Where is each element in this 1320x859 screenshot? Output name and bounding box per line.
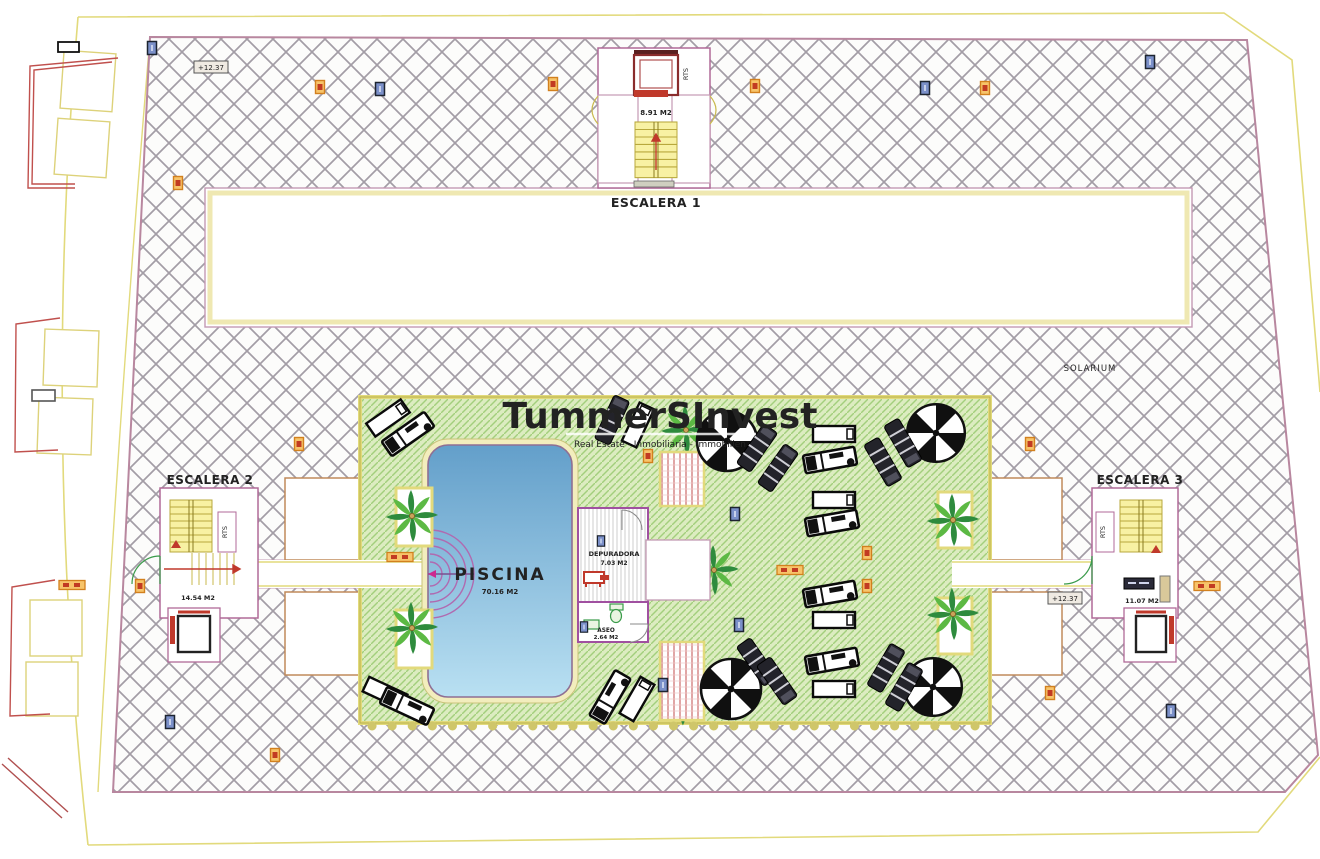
- stair-flight: [1120, 500, 1162, 552]
- elevation-value: +12.37: [1052, 595, 1078, 603]
- wall-segment: [1160, 576, 1170, 602]
- escalera2-label: ESCALERA 2: [167, 473, 254, 487]
- facade-vent-top: [58, 42, 79, 52]
- elevation-badge-top: +12.37: [194, 61, 228, 73]
- solarium-label: SOLARIUM: [1064, 364, 1117, 374]
- escalera1-rts-label: RTS: [682, 68, 690, 80]
- elevator-shaft: [1136, 616, 1166, 652]
- aseo-area: 2.64 M2: [594, 635, 619, 641]
- elevator-sill: [634, 90, 668, 97]
- elevation-badge-east: +12.37: [1048, 592, 1082, 604]
- escalera1-area: 8.91 M2: [640, 109, 672, 117]
- escalera1-core: 8.91 M2 RTS: [592, 48, 716, 188]
- pool-label: PISCINA: [454, 565, 545, 585]
- floor-plan-drawing: ESCALERA 1 8.91 M2 RTS: [0, 0, 1320, 859]
- escalera2-area: 14.54 M2: [181, 594, 215, 602]
- escalera1-label: ESCALERA 1: [611, 195, 701, 210]
- escalera2-rts-label: RTS: [221, 526, 229, 538]
- elevator-shaft: [178, 616, 210, 652]
- escalera3-label: ESCALERA 3: [1097, 473, 1184, 487]
- roof-void-band: ESCALERA 1: [205, 188, 1192, 327]
- toilet-icon: [611, 610, 622, 623]
- watermark-tagline: Real Estate - Inmobiliaria - Immobilien: [574, 440, 746, 450]
- pool-area: 70.16 M2: [482, 588, 519, 596]
- aseo-room: ASEO 2.64 M2: [578, 602, 648, 642]
- watermark-brand: TummerSInvest: [503, 396, 818, 437]
- elevation-value: +12.37: [198, 64, 224, 72]
- depuradora-label: DEPURADORA: [589, 550, 640, 558]
- depuradora-area: 7.03 M2: [600, 560, 627, 567]
- aseo-label: ASEO: [597, 628, 615, 634]
- deck-access-block: [646, 540, 710, 600]
- facade-vent-mid: [32, 390, 55, 401]
- depuradora-room: DEPURADORA 7.03 M2: [578, 508, 648, 602]
- escalera3-rts-label: RTS: [1099, 526, 1107, 538]
- floor-plan-page: ESCALERA 1 8.91 M2 RTS: [0, 0, 1320, 859]
- escalera3-area: 11.07 M2: [1125, 597, 1159, 605]
- left-facade: [2, 42, 118, 818]
- swimming-pool: PISCINA 70.16 M2: [422, 439, 578, 703]
